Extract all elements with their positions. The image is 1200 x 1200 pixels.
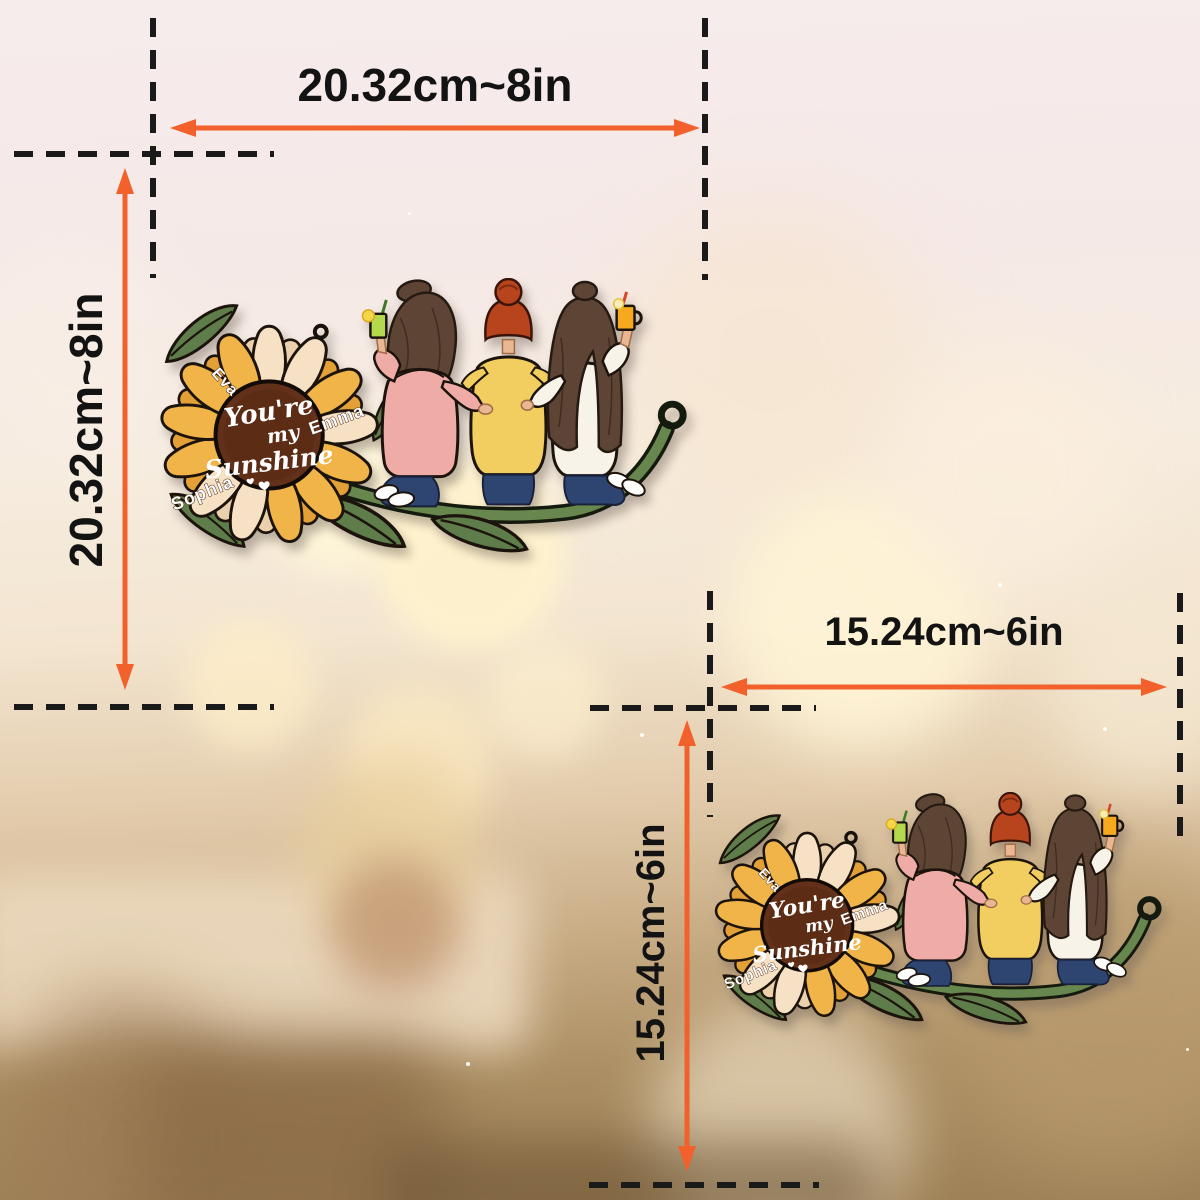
sparkle: [466, 1062, 470, 1066]
bokeh-light: [185, 620, 315, 750]
guide-dash-horizontal-bottom-small: [589, 1182, 819, 1188]
large-height-arrow: [113, 166, 137, 692]
guide-dash-horizontal-top-small: [590, 705, 816, 711]
product-image-small: [706, 792, 1178, 1045]
large-height-label: 20.32cm~8in: [59, 170, 109, 690]
guide-dash-horizontal-bottom-large: [14, 704, 274, 710]
small-width-label: 15.24cm~6in: [719, 610, 1169, 655]
sparkle: [1186, 1048, 1189, 1051]
product-size-diagram: You're my Sunshine Eva Emma Sophia: [0, 0, 1200, 1200]
bokeh-light: [890, 350, 1130, 590]
bokeh-light: [485, 640, 605, 760]
small-height-label: 15.24cm~6in: [629, 713, 673, 1173]
sparkle: [998, 583, 1002, 587]
large-width-label: 20.32cm~8in: [170, 58, 700, 112]
small-height-arrow: [675, 718, 699, 1174]
guide-dash-vertical-left-large: [150, 18, 156, 278]
sparkle: [408, 212, 411, 215]
guide-dash-vertical-left-small: [707, 591, 713, 817]
guide-dash-horizontal-top-large: [14, 151, 274, 157]
large-width-arrow: [168, 116, 702, 140]
small-width-arrow: [719, 675, 1169, 699]
product-image-large: [150, 278, 706, 576]
sparkle: [1103, 727, 1107, 731]
guide-dash-vertical-right-large: [702, 18, 708, 280]
blurred-object: [330, 860, 460, 990]
